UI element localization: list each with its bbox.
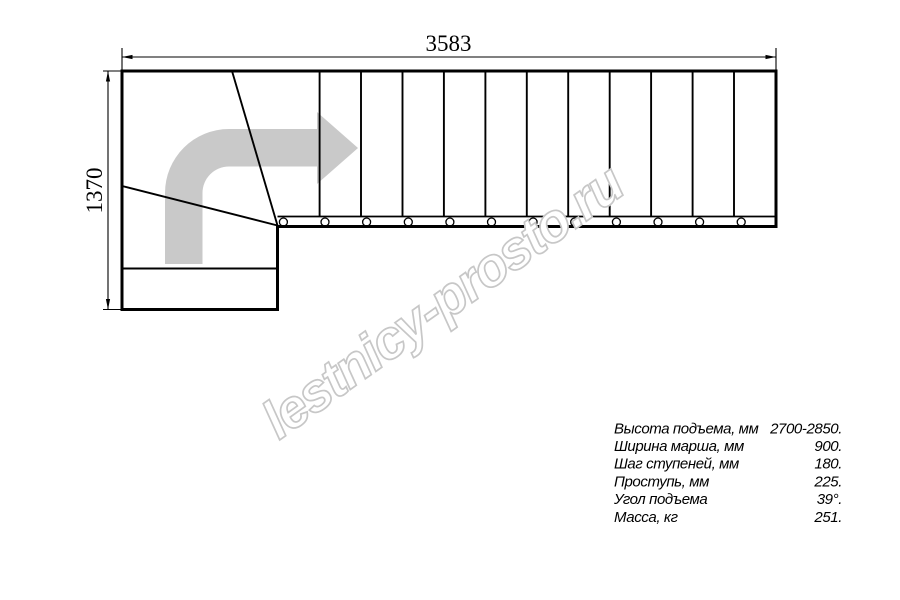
svg-text:Высота подъема, мм: Высота подъема, мм [614, 420, 759, 437]
svg-text:Масса, кг: Масса, кг [614, 509, 679, 526]
svg-text:3583: 3583 [426, 31, 472, 56]
svg-text:1370: 1370 [82, 168, 107, 214]
svg-text:Проступь, мм: Проступь, мм [614, 473, 709, 490]
svg-text:180.: 180. [814, 456, 842, 473]
svg-text:Угол подъема: Угол подъема [613, 491, 707, 508]
svg-text:Шаг ступеней, мм: Шаг ступеней, мм [614, 456, 739, 473]
svg-text:900.: 900. [814, 438, 842, 455]
svg-text:Ширина марша, мм: Ширина марша, мм [614, 438, 744, 455]
svg-text:251.: 251. [813, 509, 842, 526]
svg-text:225.: 225. [813, 473, 842, 490]
svg-text:39°.: 39°. [817, 491, 842, 508]
svg-text:2700-2850.: 2700-2850. [769, 420, 842, 437]
